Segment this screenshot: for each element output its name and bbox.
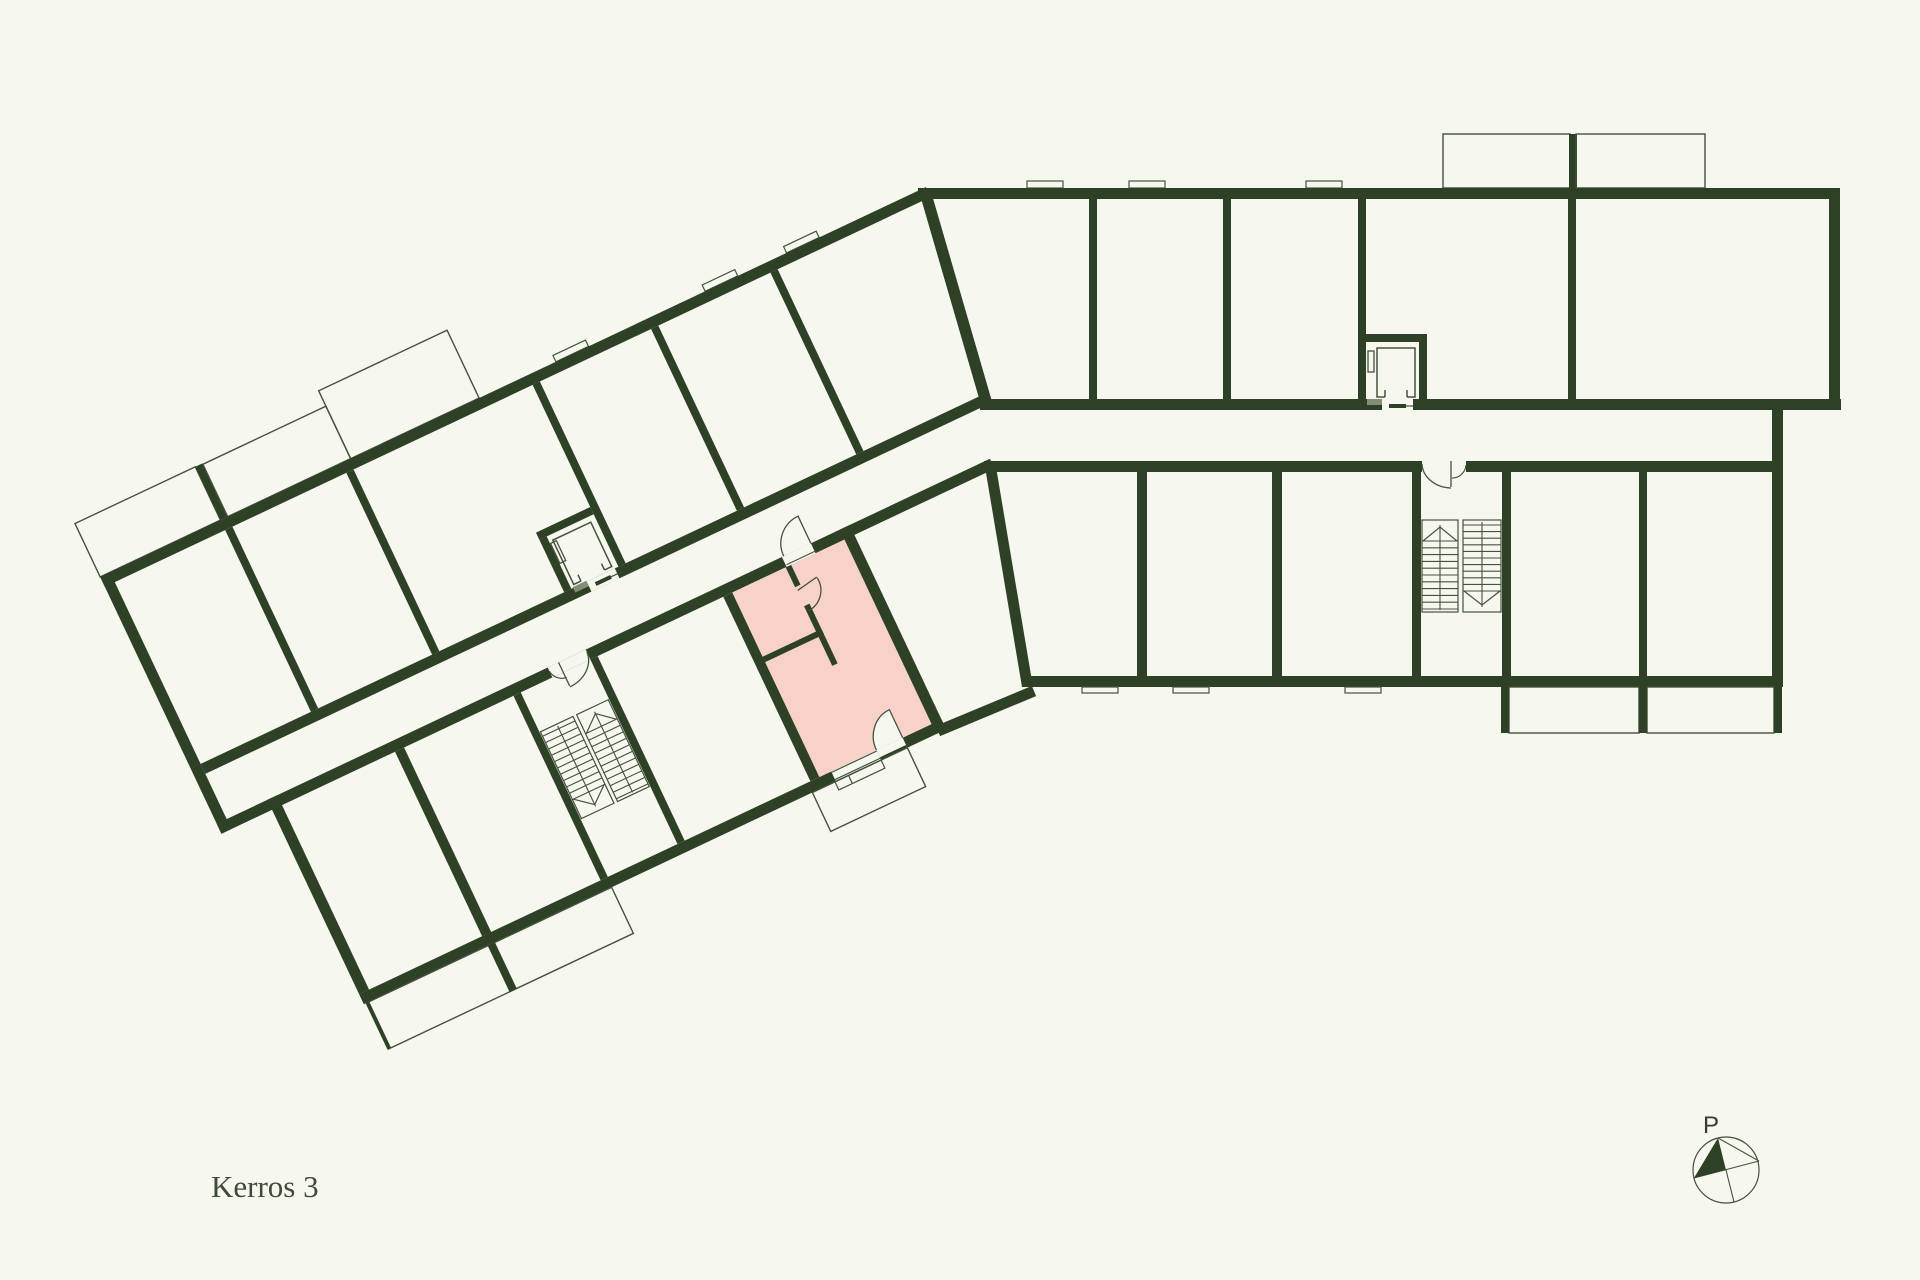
svg-text:P: P (1703, 1112, 1719, 1139)
svg-text:Kerros 3: Kerros 3 (211, 1169, 319, 1204)
